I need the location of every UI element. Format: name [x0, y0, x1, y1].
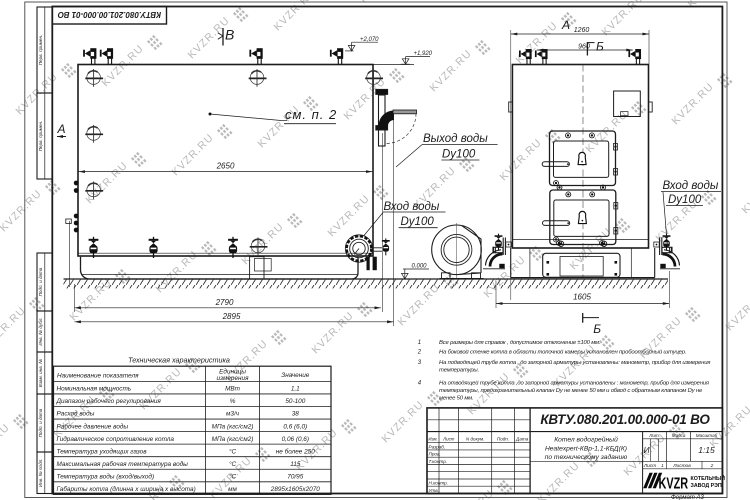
svg-text:0,6 (6,0): 0,6 (6,0)	[283, 423, 307, 430]
svg-text:N докум.: N докум.	[466, 437, 485, 442]
svg-text:Диапазон рабочего регулировани: Диапазон рабочего регулирования	[56, 397, 162, 405]
svg-text:Вход воды: Вход воды	[384, 201, 440, 213]
svg-text:Подп. и дата: Подп. и дата	[38, 408, 43, 437]
svg-text:см. п. 2: см. п. 2	[285, 107, 337, 122]
svg-text:Н.контр.: Н.контр.	[429, 481, 448, 486]
svg-text:менее 50 мм.: менее 50 мм.	[439, 396, 474, 402]
svg-text:Котел водогрейный: Котел водогрейный	[554, 436, 618, 444]
svg-text:Наименование показателя: Наименование показателя	[57, 373, 139, 380]
svg-text:температуры, предохранительный: температуры, предохранительный клапан Dy…	[439, 387, 703, 394]
svg-text:Dy100: Dy100	[668, 194, 702, 206]
svg-text:Температура воды (вход/выход): Температура воды (вход/выход)	[57, 472, 155, 480]
svg-text:Подп.: Подп.	[497, 437, 509, 442]
svg-text:Изм.: Изм.	[428, 437, 437, 442]
svg-text:Гидравлическое сопротивление к: Гидравлическое сопротивление котла	[57, 435, 175, 443]
svg-text:0,06 (0,6): 0,06 (0,6)	[282, 436, 309, 443]
svg-text:2790: 2790	[215, 298, 234, 307]
svg-text:мм: мм	[228, 486, 237, 493]
svg-text:2650: 2650	[216, 162, 235, 171]
svg-text:КОТЕЛЬНЫЙ: КОТЕЛЬНЫЙ	[691, 474, 726, 482]
svg-text:МПа (кгс/см2): МПа (кгс/см2)	[212, 436, 254, 443]
svg-text:На боковой стенке котла в обла: На боковой стенке котла в области топочн…	[439, 349, 686, 356]
svg-text:Лист: Лист	[643, 463, 656, 469]
svg-text:Пров.: Пров.	[429, 452, 441, 457]
svg-text:МПа (кгс/см2): МПа (кгс/см2)	[212, 423, 254, 430]
svg-text:2: 2	[417, 350, 422, 356]
svg-text:Вход воды: Вход воды	[663, 180, 719, 192]
svg-text:Температура уходящих газов: Температура уходящих газов	[57, 447, 148, 455]
svg-text:Утв.: Утв.	[429, 488, 439, 493]
svg-text:Максимальная рабочая температу: Максимальная рабочая температура воды	[57, 460, 189, 468]
svg-text:Heatexpert-КВр-1,1-КБД(К): Heatexpert-КВр-1,1-КБД(К)	[545, 445, 627, 452]
svg-text:температуры.: температуры.	[439, 368, 479, 374]
svg-text:Масштаб: Масштаб	[696, 433, 718, 438]
svg-text:Номинальная мощность: Номинальная мощность	[57, 386, 132, 393]
svg-text:Лит.: Лит.	[648, 433, 660, 438]
svg-text:не более 250: не более 250	[276, 447, 315, 455]
svg-text:А: А	[561, 18, 570, 32]
svg-text:960: 960	[578, 43, 590, 50]
svg-text:Масса: Масса	[672, 433, 686, 438]
svg-text:Выход воды: Выход воды	[423, 133, 488, 145]
svg-text:%: %	[230, 398, 236, 405]
svg-text:°С: °С	[229, 460, 237, 468]
svg-text:Разраб.: Разраб.	[429, 444, 446, 449]
svg-text:Инв. № дубл.: Инв. № дубл.	[38, 317, 43, 345]
svg-text:Рабочее давление воды: Рабочее давление воды	[57, 422, 129, 430]
svg-text:Dy100: Dy100	[442, 149, 476, 161]
svg-text:На отводящей трубе котла ,до з: На отводящей трубе котла ,до запорной ар…	[439, 380, 710, 387]
svg-text:1260: 1260	[574, 27, 590, 34]
svg-text:Б: Б	[596, 40, 604, 54]
svg-text:КВТУ.080.201.00.000-01 ВО: КВТУ.080.201.00.000-01 ВО	[57, 10, 161, 19]
svg-text:Перв. примен.: Перв. примен.	[38, 121, 43, 152]
svg-text:1:15: 1:15	[698, 445, 715, 455]
svg-text:Dy100: Dy100	[401, 216, 435, 228]
svg-text:Перв. примен.: Перв. примен.	[38, 35, 43, 66]
svg-text:измерения: измерения	[217, 375, 250, 382]
svg-text:1,1: 1,1	[291, 386, 300, 393]
svg-text:ЗАВОД РЭП: ЗАВОД РЭП	[691, 483, 722, 489]
svg-text:Габариты котла (длинна х ширин: Габариты котла (длинна х ширина х высота…	[57, 485, 196, 493]
svg-text:Листов: Листов	[672, 463, 691, 469]
svg-text:1605: 1605	[573, 292, 591, 301]
svg-text:2895: 2895	[222, 312, 241, 321]
svg-text:Инв. № подл.: Инв. № подл.	[38, 458, 43, 487]
svg-text:КВТУ.080.201.00.000-01 ВО: КВТУ.080.201.00.000-01 ВО	[540, 412, 710, 427]
svg-text:°С: °С	[229, 447, 237, 455]
svg-text:по техническому заданию: по техническому заданию	[545, 453, 628, 461]
svg-text:38: 38	[292, 411, 300, 418]
svg-text:115: 115	[290, 461, 301, 468]
svg-text:Взам. инв. №: Взам. инв. №	[38, 359, 43, 387]
svg-text:Т.контр.: Т.контр.	[429, 459, 448, 464]
svg-text:А: А	[57, 122, 66, 136]
svg-text:50-100: 50-100	[285, 398, 305, 405]
svg-text:2: 2	[710, 463, 714, 469]
svg-text:На подводящей трубе котла ,: На подводящей трубе котла , до запорной …	[439, 359, 711, 366]
svg-text:И: И	[644, 445, 651, 455]
svg-text:Значение: Значение	[281, 372, 309, 379]
svg-text:В: В	[225, 27, 234, 43]
svg-text:1: 1	[418, 340, 421, 346]
svg-text:70/95: 70/95	[287, 473, 303, 480]
svg-text:МВт: МВт	[225, 386, 241, 393]
svg-text:Лист: Лист	[442, 437, 455, 442]
svg-text:Б: Б	[593, 322, 601, 336]
svg-text:0.000: 0.000	[412, 263, 428, 269]
svg-text:Техническая характеристика: Техническая характеристика	[128, 356, 230, 365]
svg-text:Формат А3: Формат А3	[671, 495, 704, 500]
svg-text:°С: °С	[229, 472, 237, 480]
svg-text:Дата: Дата	[515, 437, 529, 442]
svg-text:Подп. и дата: Подп. и дата	[38, 267, 43, 296]
svg-text:Расход воды: Расход воды	[57, 410, 95, 418]
svg-text:KVZR: KVZR	[659, 474, 689, 492]
svg-text:Все размеры для справок , допу: Все размеры для справок , допустимое отк…	[439, 340, 600, 346]
svg-text:2895х1605х2070: 2895х1605х2070	[270, 486, 320, 493]
svg-text:м3/ч: м3/ч	[226, 411, 240, 418]
svg-text:1: 1	[661, 463, 664, 469]
